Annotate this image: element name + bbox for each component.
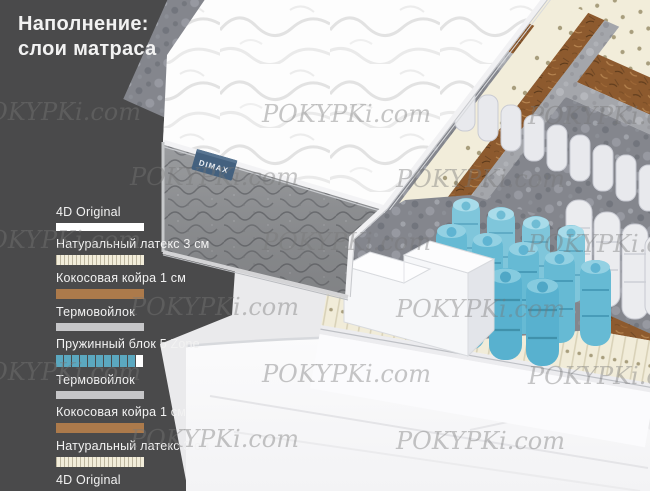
layer-label: 4D Original bbox=[56, 205, 206, 220]
swatch-latex bbox=[56, 457, 144, 467]
layer-label: Натуральный латекс 3 см bbox=[56, 237, 206, 252]
swatch-cover bbox=[56, 223, 144, 231]
layer-legend: 4D Original Натуральный латекс 3 см Коко… bbox=[56, 205, 206, 491]
layer-label: Термовойлок bbox=[56, 305, 206, 320]
layer-label: Термовойлок bbox=[56, 373, 206, 388]
layer-label: 4D Original bbox=[56, 473, 206, 488]
title-line-1: Наполнение: bbox=[18, 12, 157, 37]
layer-label: Пружинный блок 5 Zone bbox=[56, 337, 206, 352]
title-line-2: слои матраса bbox=[18, 37, 157, 62]
swatch-coir bbox=[56, 289, 144, 299]
layer-item-cover-bottom: 4D Original bbox=[56, 473, 206, 491]
layer-item-springs: Пружинный блок 5 Zone bbox=[56, 337, 206, 367]
mattress-infographic: DIMAX Наполнение: слои матраса 4D Origin… bbox=[0, 0, 650, 491]
layer-item-coir-bottom: Кокосовая койра 1 см bbox=[56, 405, 206, 433]
layer-label: Кокосовая койра 1 см bbox=[56, 405, 206, 420]
page-title: Наполнение: слои матраса bbox=[18, 12, 157, 62]
layer-item-felt-bottom: Термовойлок bbox=[56, 373, 206, 399]
swatch-felt bbox=[56, 391, 144, 399]
swatch-coir bbox=[56, 423, 144, 433]
layer-label: Кокосовая койра 1 см bbox=[56, 271, 206, 286]
layer-label: Натуральный латекс 3 см bbox=[56, 439, 206, 454]
layer-item-cover-top: 4D Original bbox=[56, 205, 206, 231]
layer-item-latex-bottom: Натуральный латекс 3 см bbox=[56, 439, 206, 467]
swatch-latex bbox=[56, 255, 144, 265]
layer-item-felt-top: Термовойлок bbox=[56, 305, 206, 331]
swatch-felt bbox=[56, 323, 144, 331]
swatch-springs bbox=[56, 355, 144, 367]
layer-item-coir-top: Кокосовая койра 1 см bbox=[56, 271, 206, 299]
layer-item-latex-top: Натуральный латекс 3 см bbox=[56, 237, 206, 265]
